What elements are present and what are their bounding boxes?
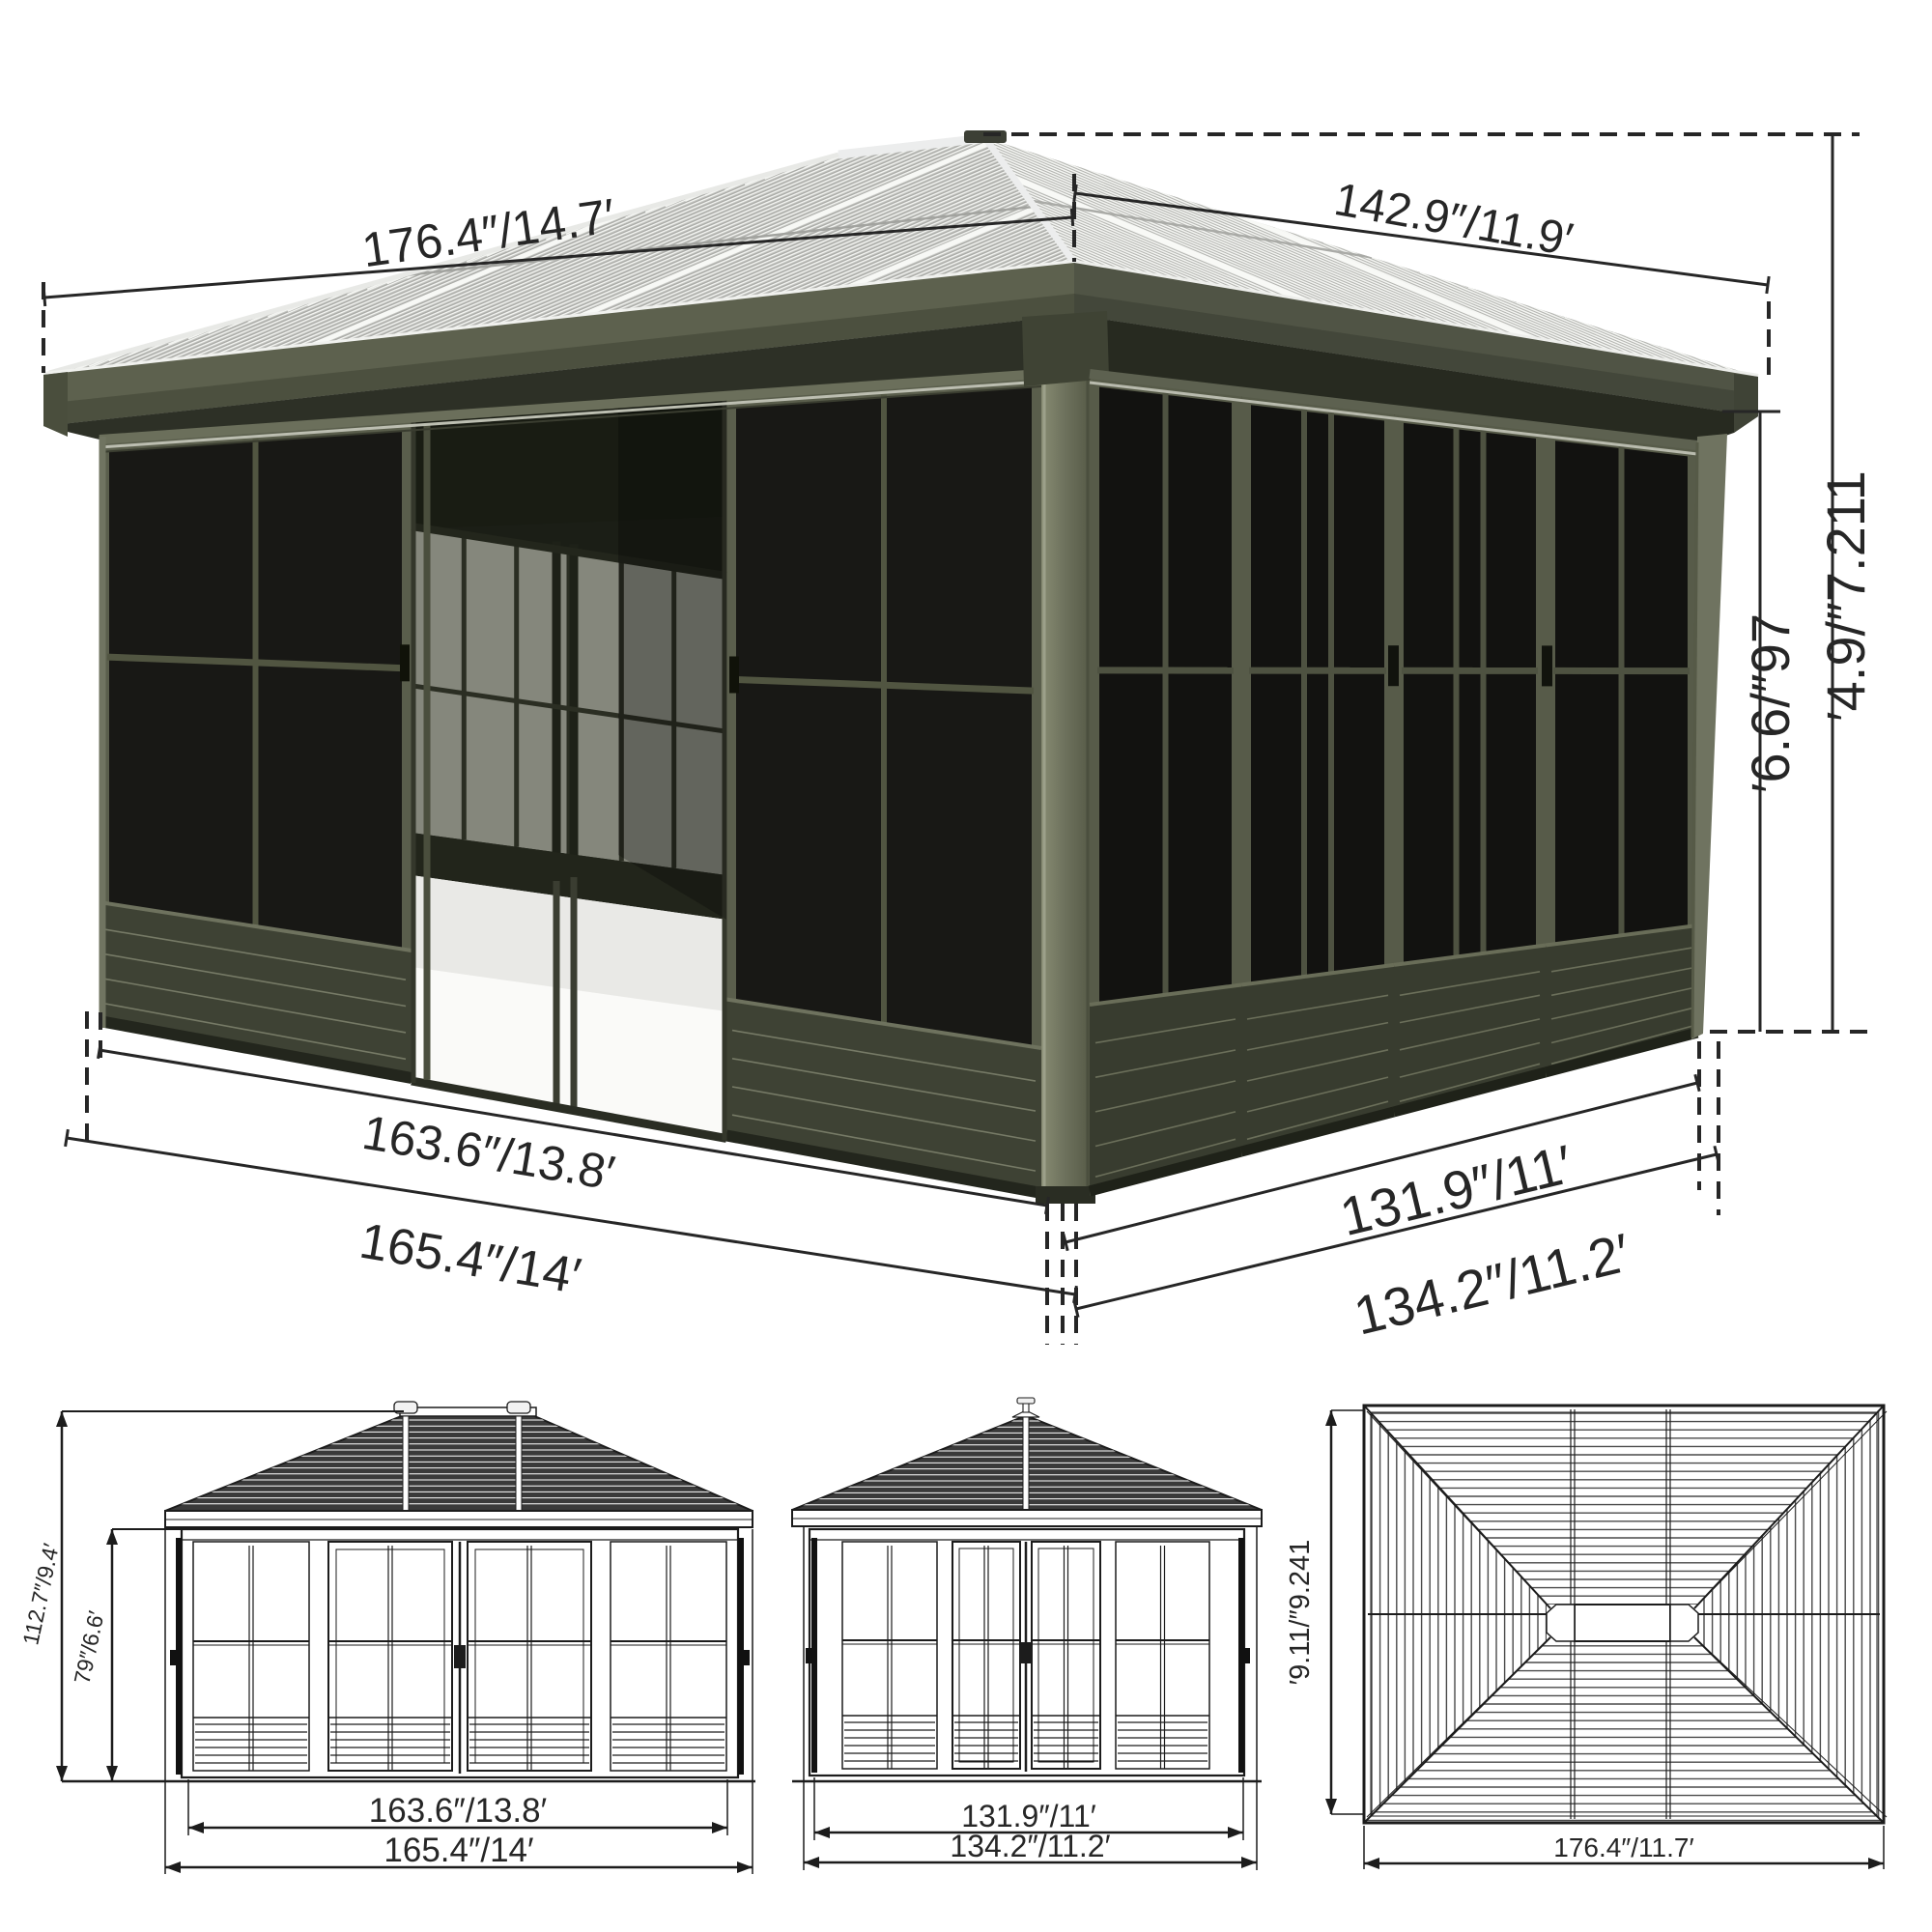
svg-text:163.6″/13.8′: 163.6″/13.8′: [369, 1792, 547, 1830]
svg-text:176.4″/11.7′: 176.4″/11.7′: [1553, 1833, 1693, 1862]
svg-text:′4.9/″7.211: ′4.9/″7.211: [1815, 470, 1876, 722]
svg-text:′9.11/″9.241: ′9.11/″9.241: [1285, 1540, 1316, 1686]
svg-text:′6.6/″97: ′6.6/″97: [1740, 613, 1801, 793]
svg-text:134.2″/11.2′: 134.2″/11.2′: [950, 1829, 1110, 1863]
svg-text:165.4″/14′: 165.4″/14′: [384, 1832, 533, 1869]
